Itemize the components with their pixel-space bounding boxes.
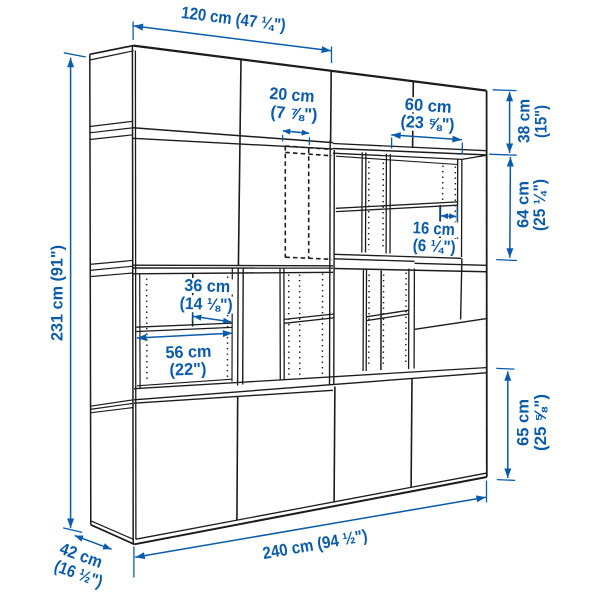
- svg-text:(25 ⅝"): (25 ⅝"): [531, 394, 550, 451]
- svg-text:(6 ¼"): (6 ¼"): [412, 236, 456, 257]
- svg-text:(25 ¼"): (25 ¼"): [530, 179, 549, 231]
- svg-text:65 cm: 65 cm: [513, 399, 532, 446]
- svg-text:231 cm (91"): 231 cm (91"): [47, 245, 66, 341]
- svg-text:(14 ⅛"): (14 ⅛"): [179, 294, 233, 315]
- svg-text:(15"): (15"): [531, 105, 550, 138]
- svg-text:(22"): (22"): [169, 359, 207, 379]
- svg-text:(23 ⅝"): (23 ⅝"): [400, 112, 455, 135]
- svg-text:(7 ⅞"): (7 ⅞"): [270, 102, 318, 124]
